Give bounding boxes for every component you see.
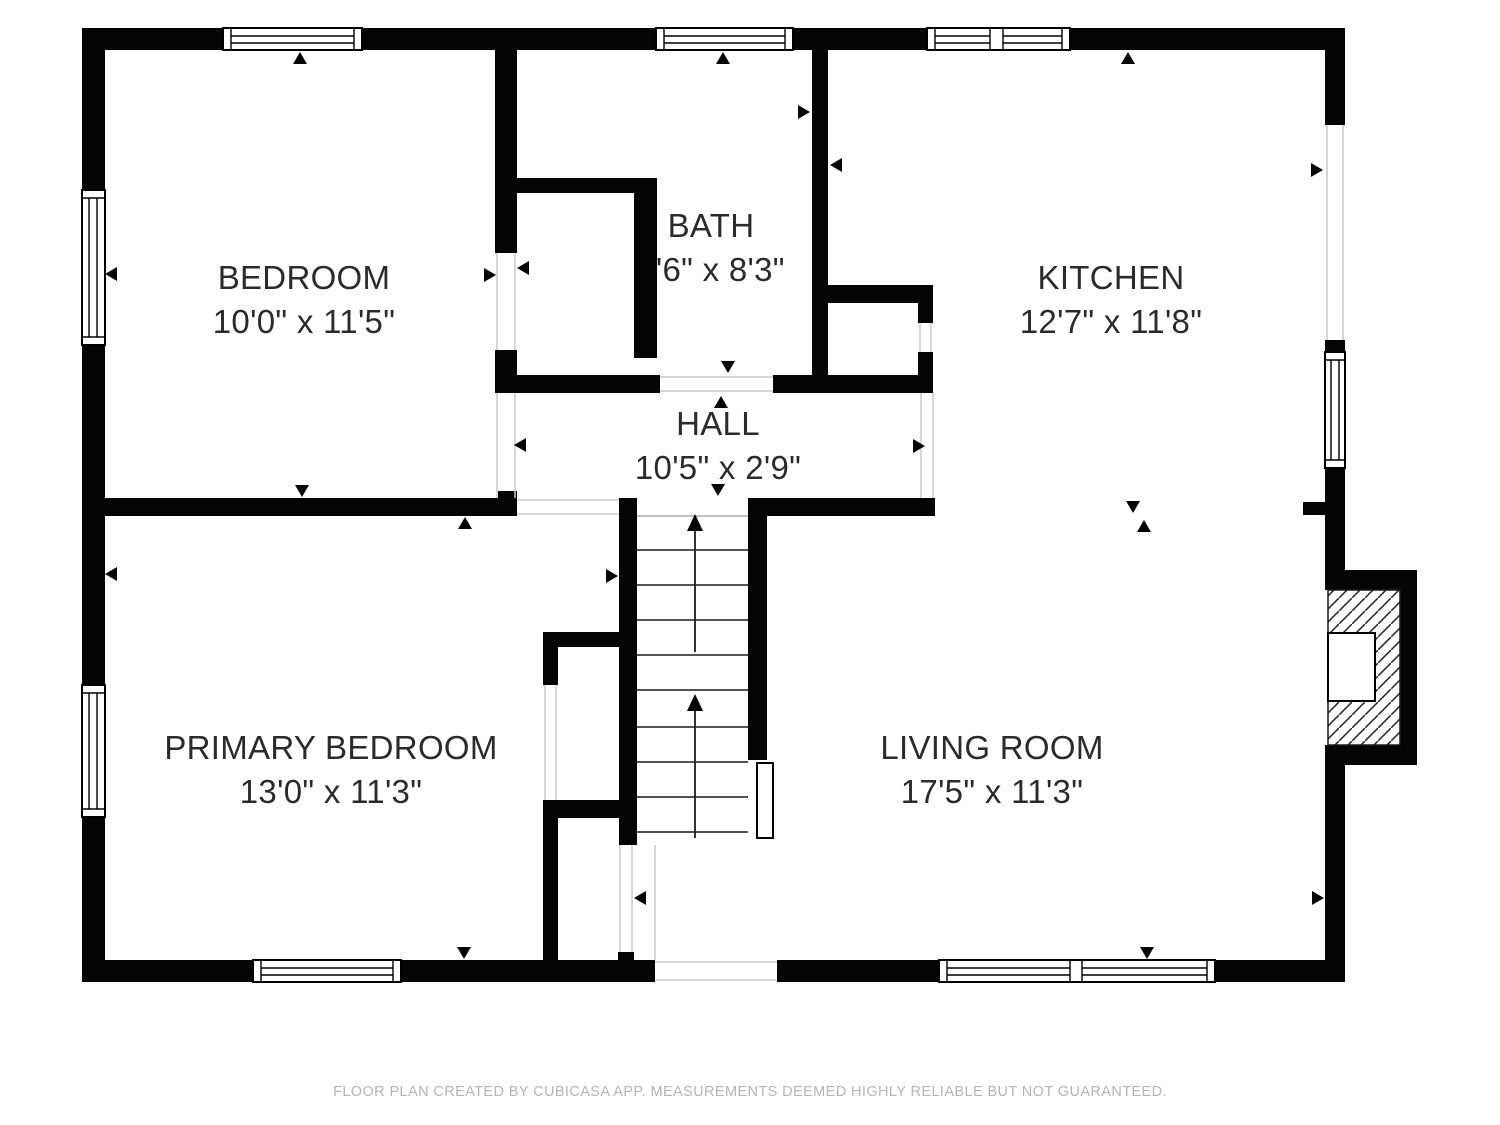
room-dimensions: 7'6" x 8'3" <box>637 248 785 292</box>
room-dimensions: 17'5" x 11'3" <box>880 770 1103 814</box>
room-dimensions: 10'5" x 2'9" <box>635 446 801 490</box>
footer-disclaimer: FLOOR PLAN CREATED BY CUBICASA APP. MEAS… <box>333 1084 1167 1100</box>
room-name: BATH <box>637 204 785 248</box>
room-dimensions: 13'0" x 11'3" <box>164 770 497 814</box>
bath-label: BATH 7'6" x 8'3" <box>637 204 785 292</box>
living-room-label: LIVING ROOM 17'5" x 11'3" <box>880 726 1103 814</box>
room-name: BEDROOM <box>213 256 395 300</box>
room-dimensions: 10'0" x 11'5" <box>213 300 395 344</box>
room-labels-layer: BEDROOM 10'0" x 11'5" BATH 7'6" x 8'3" K… <box>0 0 1500 1125</box>
room-dimensions: 12'7" x 11'8" <box>1020 300 1202 344</box>
room-name: LIVING ROOM <box>880 726 1103 770</box>
floor-plan-page: BEDROOM 10'0" x 11'5" BATH 7'6" x 8'3" K… <box>0 0 1500 1125</box>
kitchen-label: KITCHEN 12'7" x 11'8" <box>1020 256 1202 344</box>
bedroom-label: BEDROOM 10'0" x 11'5" <box>213 256 395 344</box>
primary-bedroom-label: PRIMARY BEDROOM 13'0" x 11'3" <box>164 726 497 814</box>
room-name: PRIMARY BEDROOM <box>164 726 497 770</box>
room-name: HALL <box>635 402 801 446</box>
hall-label: HALL 10'5" x 2'9" <box>635 402 801 490</box>
room-name: KITCHEN <box>1020 256 1202 300</box>
